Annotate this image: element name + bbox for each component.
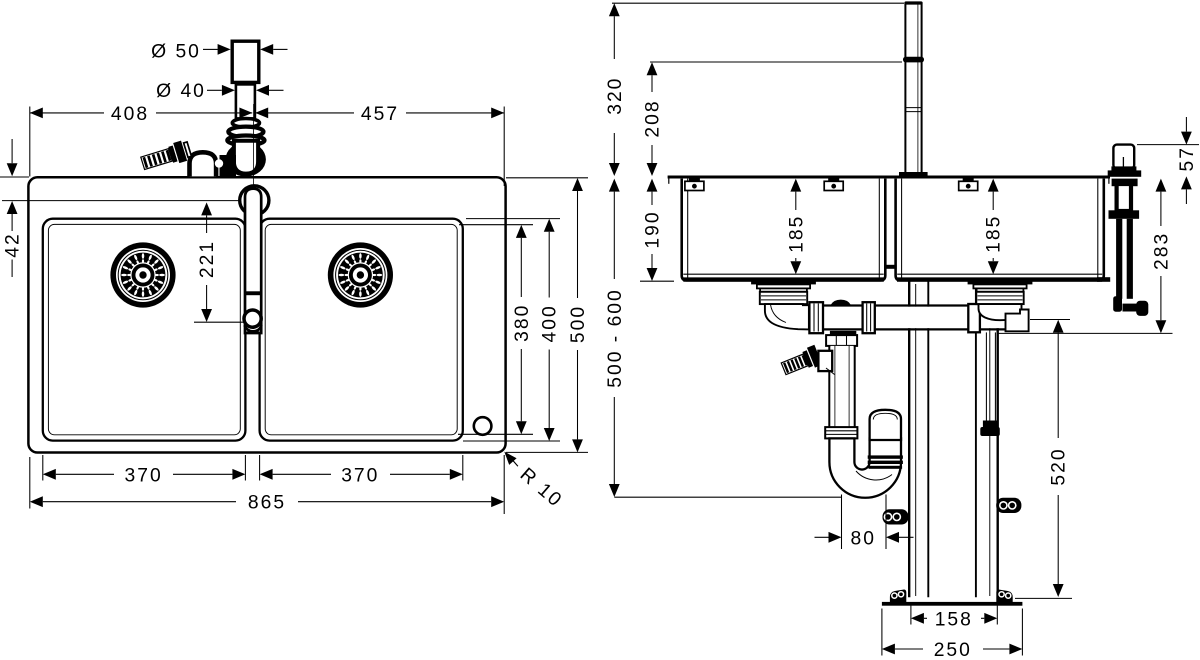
svg-text:380: 380 (512, 304, 533, 342)
svg-text:500: 500 (568, 305, 589, 343)
svg-text:250: 250 (934, 640, 972, 660)
svg-text:520: 520 (1049, 447, 1070, 485)
svg-text:Ø 50: Ø 50 (151, 41, 201, 62)
svg-text:283: 283 (1151, 232, 1172, 270)
svg-text:457: 457 (361, 104, 399, 125)
svg-text:370: 370 (125, 465, 163, 486)
svg-text:408: 408 (111, 104, 149, 125)
svg-text:185: 185 (984, 215, 1005, 253)
svg-text:208: 208 (643, 99, 664, 137)
svg-text:221: 221 (197, 240, 218, 278)
svg-text:158: 158 (935, 609, 973, 630)
svg-text:320: 320 (605, 77, 626, 115)
svg-text:865: 865 (248, 493, 286, 514)
svg-text:400: 400 (540, 304, 561, 342)
svg-text:80: 80 (850, 528, 875, 549)
svg-text:190: 190 (643, 210, 664, 248)
svg-text:500 - 600: 500 - 600 (605, 288, 626, 387)
svg-text:42: 42 (3, 232, 24, 257)
svg-text:185: 185 (786, 215, 807, 253)
svg-text:370: 370 (341, 465, 379, 486)
svg-text:Ø 40: Ø 40 (156, 81, 206, 102)
svg-text:57: 57 (1177, 146, 1198, 171)
